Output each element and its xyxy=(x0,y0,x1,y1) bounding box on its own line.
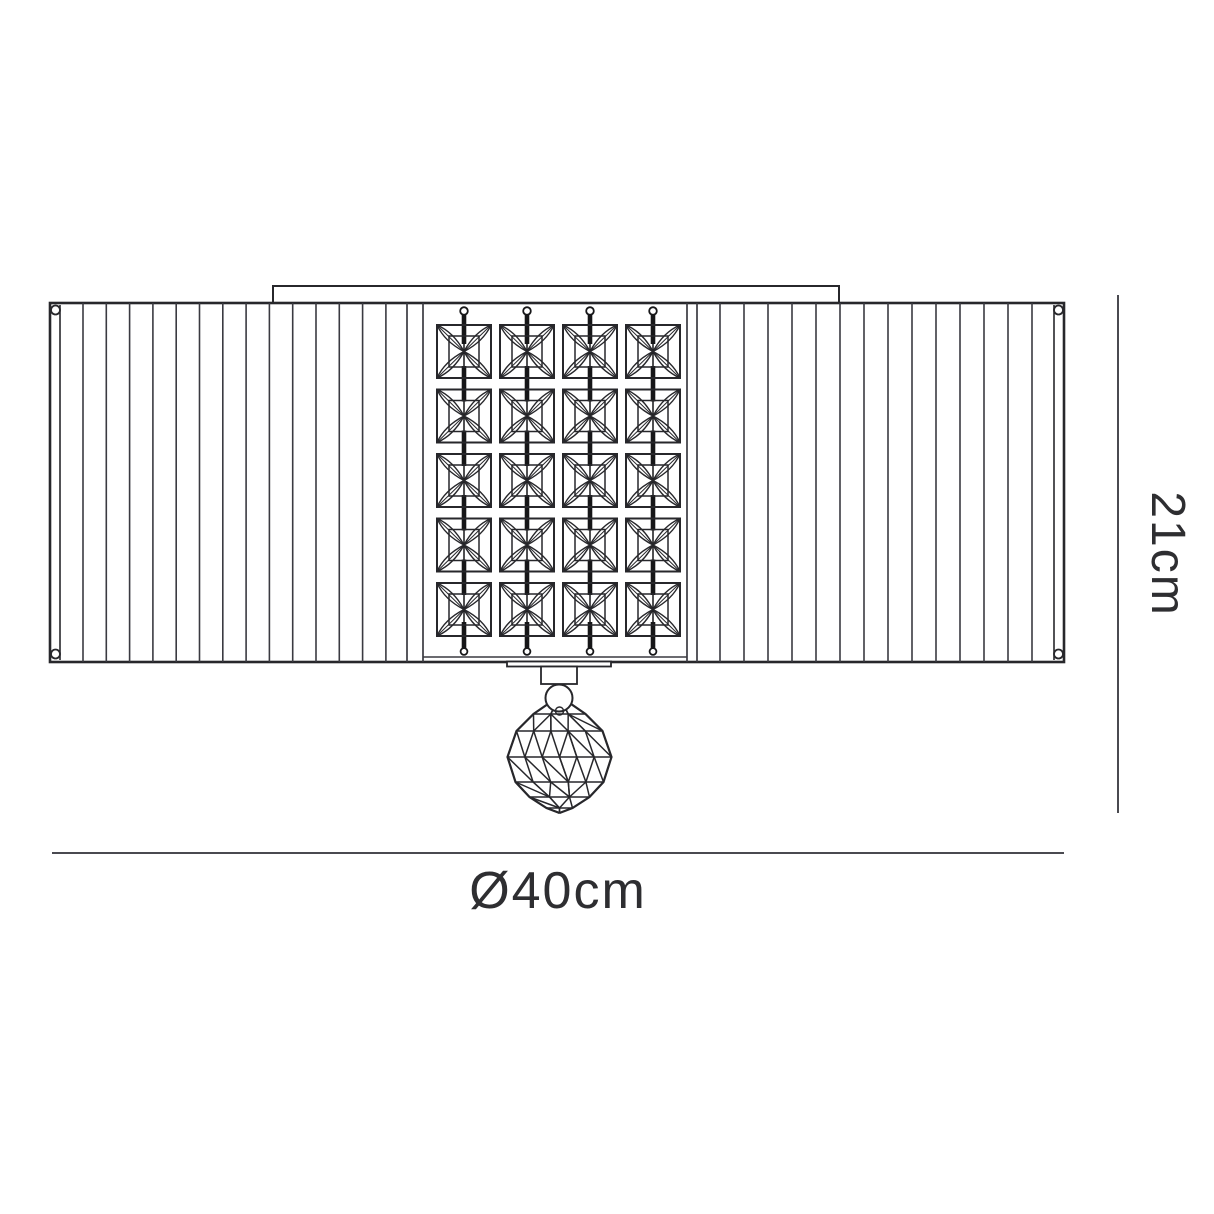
fixture-geometry xyxy=(50,286,1064,813)
fixture-drawing: 21cm Ø40cm xyxy=(0,0,1214,1214)
diameter-dimension-label: Ø40cm xyxy=(469,862,647,920)
height-dimension-label: 21cm xyxy=(1141,491,1194,616)
product-dimension-diagram: 21cm Ø40cm xyxy=(0,0,1214,1214)
